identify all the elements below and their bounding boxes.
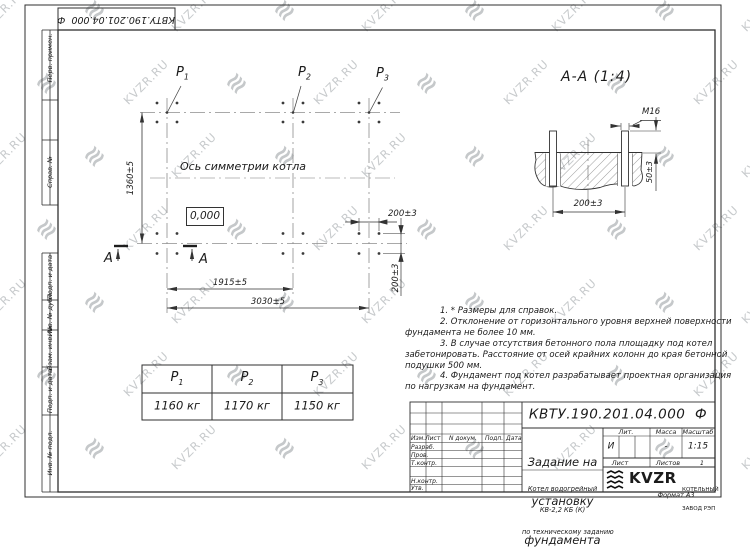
point-p3-base: P — [376, 66, 384, 81]
row-prov: Пров. — [411, 453, 428, 459]
doc-title-line1: Задание на — [522, 456, 603, 469]
section-concrete — [535, 131, 643, 189]
row-tkontr: Т.контр. — [411, 461, 437, 467]
margin-label-perv-primen: Перв. примен. — [47, 34, 54, 83]
section-dim-50: 50±3 — [646, 161, 654, 183]
dim-width-1915: 1915±5 — [213, 279, 247, 288]
section-title: А-А (1:4) — [561, 70, 632, 84]
point-p1-sub: 1 — [184, 73, 189, 82]
thread-callout-m16: М16 — [642, 108, 660, 117]
note-line: подушки 500 мм. — [405, 361, 713, 372]
dim-height-1360: 1360±5 — [127, 161, 136, 195]
load-value-p1: 1160 кг — [154, 400, 200, 412]
note-line: фундамента не более 10 мм. — [405, 328, 713, 339]
load-table-header-p2: P2 — [241, 371, 254, 387]
listov-label: Листов — [656, 459, 680, 466]
point-p2-sub: 2 — [306, 73, 311, 82]
lit-value: И — [608, 443, 615, 452]
note-line: забетонировать. Расстояние от осей крайн… — [405, 350, 713, 361]
margin-label-inv-podl: Инв. № подл. — [47, 431, 54, 476]
note-line: 1. * Размеры для справок. — [405, 306, 713, 317]
masshtab-value: 1:15 — [688, 443, 708, 452]
note-line: 3. В случае отсутствия бетонного пола пл… — [405, 339, 713, 350]
point-label-p3: P3 — [376, 67, 389, 83]
col-n-dokum: N докум. — [449, 436, 477, 442]
logo-text: KVZR — [629, 471, 677, 486]
boiler-symmetry-axis-label: Ось симметрии котла — [180, 161, 306, 172]
row-utv: Утв. — [411, 486, 424, 492]
p2-base: P — [241, 370, 249, 385]
product-line3: по техническому заданию — [522, 529, 603, 536]
top-stamp-designation: КВТУ.190.201.04.000 Ф — [57, 14, 175, 24]
col-data: Дата — [506, 436, 522, 442]
listov-value: 1 — [700, 459, 704, 466]
dim-bolt-spacing-v: 200±3 — [392, 264, 401, 293]
cut-letter-a-left: А — [104, 252, 113, 265]
p3-sub: 3 — [318, 378, 323, 387]
logo-sub2: ЗАВОД РЭП — [682, 506, 719, 512]
lit-label: Лит. — [619, 429, 634, 436]
product-name: Котел водогрейный КВ-2,2 КБ (К) по техни… — [522, 471, 603, 544]
margin-label-sprav-n: Справ. № — [47, 156, 54, 188]
masshtab-label: Масштаб — [683, 429, 714, 436]
cut-letter-a-right: А — [199, 253, 208, 266]
kvzr-logo-icon — [607, 471, 623, 488]
load-value-p3: 1150 кг — [294, 400, 340, 412]
dim-width-3030: 3030±5 — [251, 298, 285, 307]
note-line: 4. Фундамент под котел разрабатывает про… — [405, 371, 713, 382]
p1-base: P — [171, 370, 179, 385]
point-p3-sub: 3 — [384, 74, 389, 83]
margin-label-vzam-inv: Взам. инв. № — [47, 326, 54, 370]
row-nkontr: Н.контр. — [411, 479, 438, 485]
point-p2-base: P — [298, 65, 306, 80]
title-block-designation: КВТУ.190.201.04.000 Ф — [529, 408, 707, 422]
p3-base: P — [311, 370, 319, 385]
format-label: Формат А3 — [657, 492, 694, 499]
notes: 1. * Размеры для справок. 2. Отклонение … — [405, 306, 713, 393]
section-cut-marks — [114, 246, 197, 261]
plan-dimensions — [142, 113, 405, 309]
list-label: Лист — [612, 459, 628, 466]
product-line2: КВ-2,2 КБ (К) — [522, 507, 603, 514]
margin-label-podp-data-2: Подп. и дата — [47, 369, 54, 413]
point-leaders — [168, 86, 383, 112]
dim-bolt-spacing-h: 200±3 — [388, 210, 417, 219]
product-line1: Котел водогрейный — [522, 486, 603, 493]
massa-label: Масса — [656, 429, 677, 436]
col-podp: Подп. — [485, 436, 503, 442]
col-izm-list: Изм.Лист — [411, 436, 440, 442]
plan-centerlines — [137, 98, 588, 313]
row-razrab: Разраб. — [411, 445, 435, 451]
load-table-header-p3: P3 — [311, 371, 324, 387]
level-mark-box: 0,000 — [186, 207, 224, 226]
level-mark-value: 0,000 — [190, 211, 220, 222]
note-line: 2. Отклонение от горизонтального уровня … — [405, 317, 713, 328]
section-dim-200: 200±3 — [574, 200, 603, 209]
point-label-p1: P1 — [176, 66, 189, 82]
massa-value: - — [664, 443, 667, 452]
note-line: по нагрузкам на фундамент. — [405, 382, 713, 393]
point-label-p2: P2 — [298, 66, 311, 82]
drawing-sheet: { "watermark": { "text": "KVZR.RU" }, "s… — [0, 0, 750, 500]
anchor-bolt-icon — [550, 131, 557, 186]
load-table-header-p1: P1 — [171, 371, 184, 387]
p1-sub: 1 — [178, 378, 183, 387]
anchor-bolt-icon — [622, 131, 629, 186]
load-value-p2: 1170 кг — [224, 400, 270, 412]
drawing-linework — [0, 0, 750, 500]
p2-sub: 2 — [248, 378, 253, 387]
point-p1-base: P — [176, 65, 184, 80]
